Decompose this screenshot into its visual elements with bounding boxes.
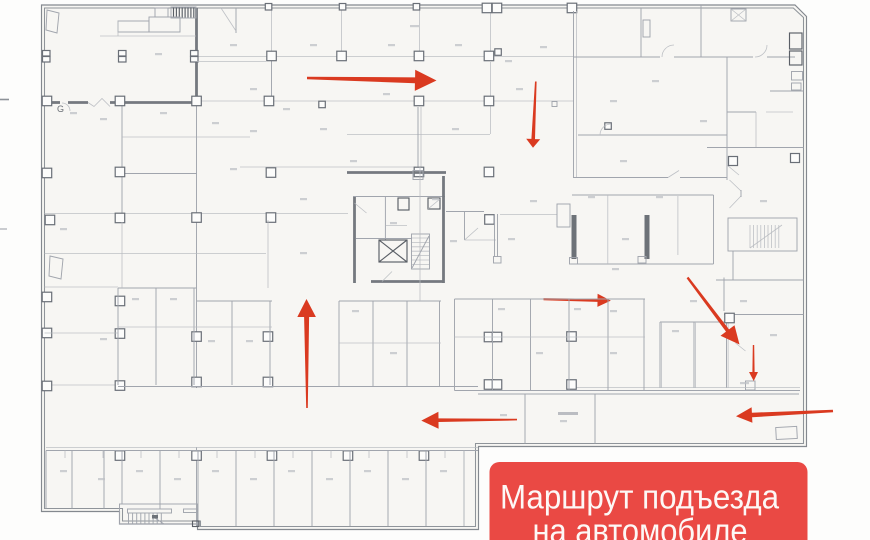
svg-text:на автомобиле: на автомобиле [533, 513, 748, 540]
svg-text:Маршрут подъезда: Маршрут подъезда [500, 479, 779, 517]
svg-text:G: G [57, 104, 64, 114]
